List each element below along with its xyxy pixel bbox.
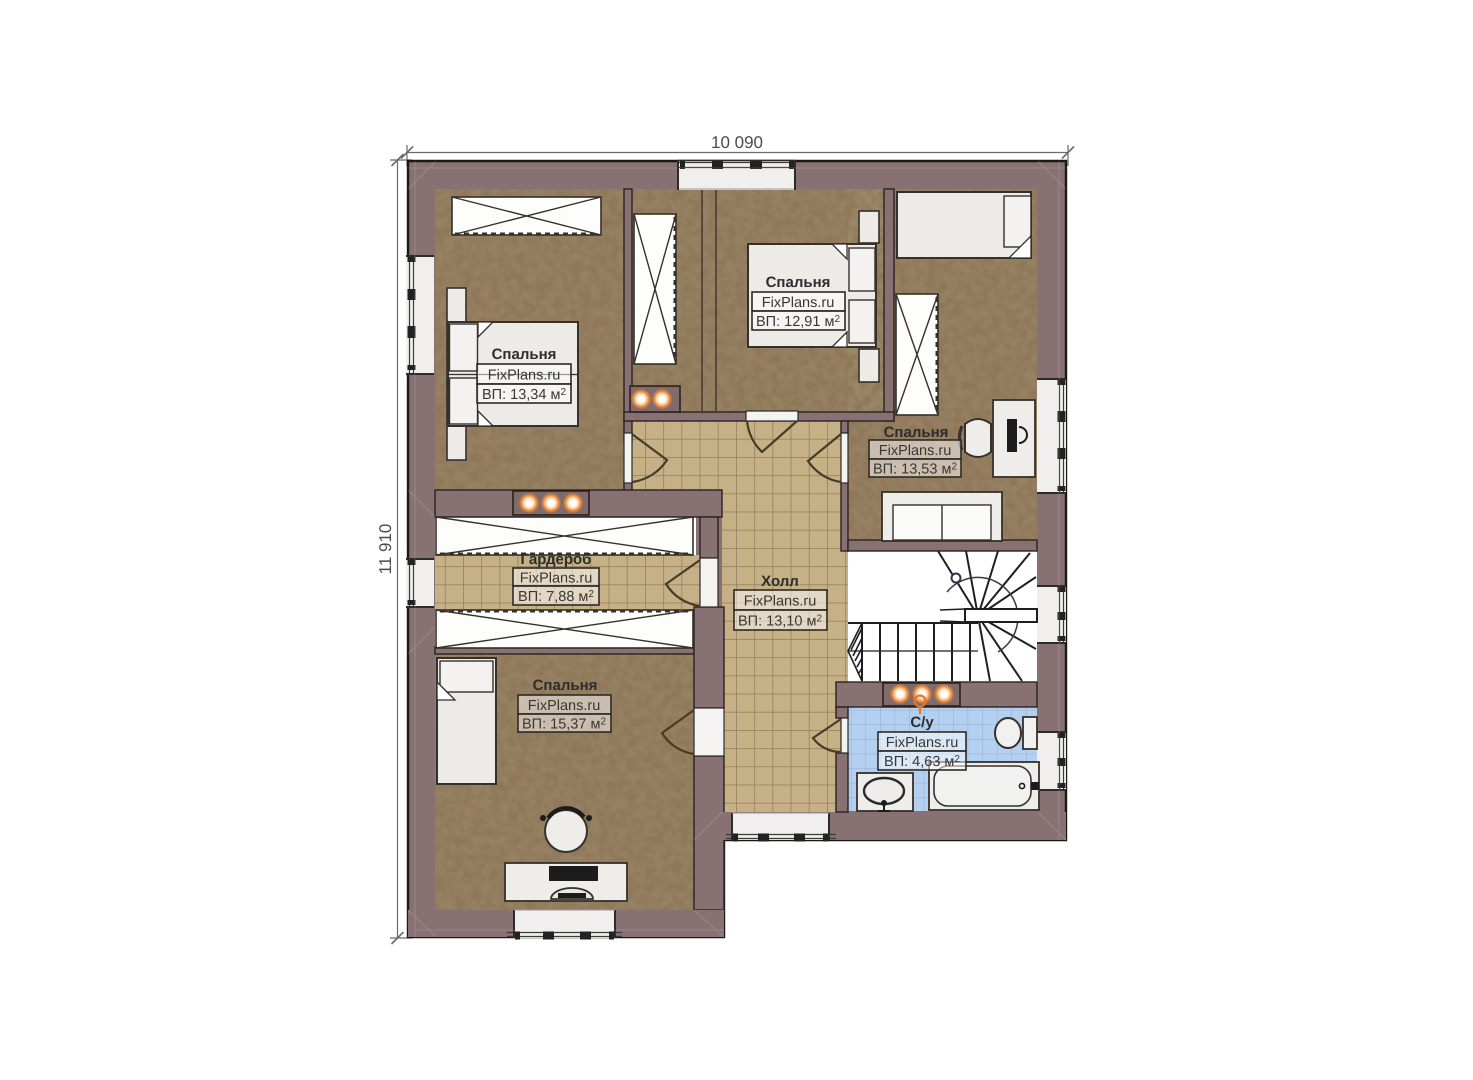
svg-text:ВП: 7,88 м2: ВП: 7,88 м2 xyxy=(518,589,594,605)
svg-text:FixPlans.ru: FixPlans.ru xyxy=(879,443,952,459)
svg-text:Спальня: Спальня xyxy=(884,424,949,441)
svg-text:FixPlans.ru: FixPlans.ru xyxy=(886,735,959,751)
svg-text:FixPlans.ru: FixPlans.ru xyxy=(528,698,601,714)
svg-text:Спальня: Спальня xyxy=(492,346,557,363)
svg-text:Спальня: Спальня xyxy=(533,677,598,694)
svg-text:ВП: 4,63 м2: ВП: 4,63 м2 xyxy=(884,754,960,770)
svg-text:10 090: 10 090 xyxy=(711,133,763,152)
svg-text:11 910: 11 910 xyxy=(376,524,395,575)
svg-text:Холл: Холл xyxy=(761,573,799,590)
svg-text:Гардероб: Гардероб xyxy=(521,551,592,568)
svg-text:FixPlans.ru: FixPlans.ru xyxy=(488,368,561,384)
svg-text:С/у: С/у xyxy=(910,714,934,731)
svg-text:ВП: 13,10 м2: ВП: 13,10 м2 xyxy=(738,614,822,630)
svg-text:FixPlans.ru: FixPlans.ru xyxy=(520,571,593,587)
svg-text:FixPlans.ru: FixPlans.ru xyxy=(744,594,817,610)
svg-text:ВП: 13,53 м2: ВП: 13,53 м2 xyxy=(873,462,957,478)
svg-text:ВП: 12,91 м2: ВП: 12,91 м2 xyxy=(756,314,840,330)
svg-text:Спальня: Спальня xyxy=(766,274,831,291)
svg-text:FixPlans.ru: FixPlans.ru xyxy=(762,295,835,311)
svg-text:ВП: 15,37 м2: ВП: 15,37 м2 xyxy=(522,717,606,733)
svg-text:ВП: 13,34 м2: ВП: 13,34 м2 xyxy=(482,387,566,403)
